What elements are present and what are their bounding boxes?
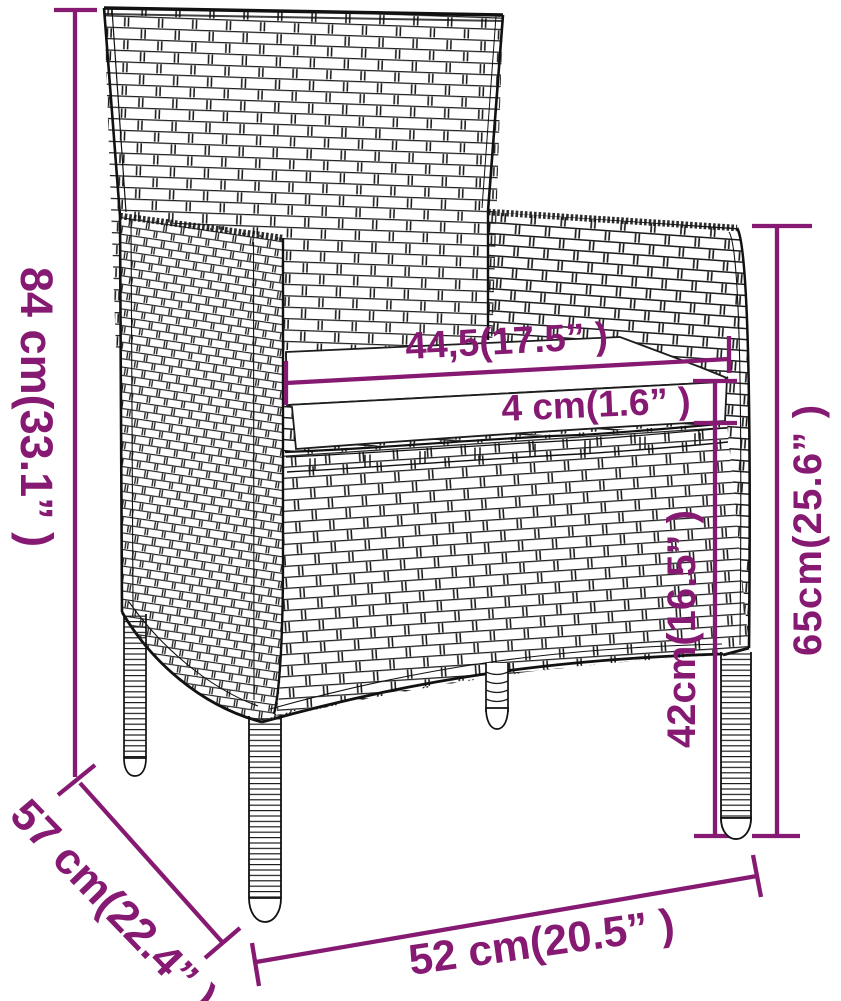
svg-text:4 cm(1.6” ): 4 cm(1.6” ) xyxy=(501,380,692,429)
svg-text:84 cm(33.1” ): 84 cm(33.1” ) xyxy=(11,267,62,547)
svg-text:65cm(25.6” ): 65cm(25.6” ) xyxy=(786,404,830,656)
svg-text:42cm(16.5” ): 42cm(16.5” ) xyxy=(660,510,704,748)
